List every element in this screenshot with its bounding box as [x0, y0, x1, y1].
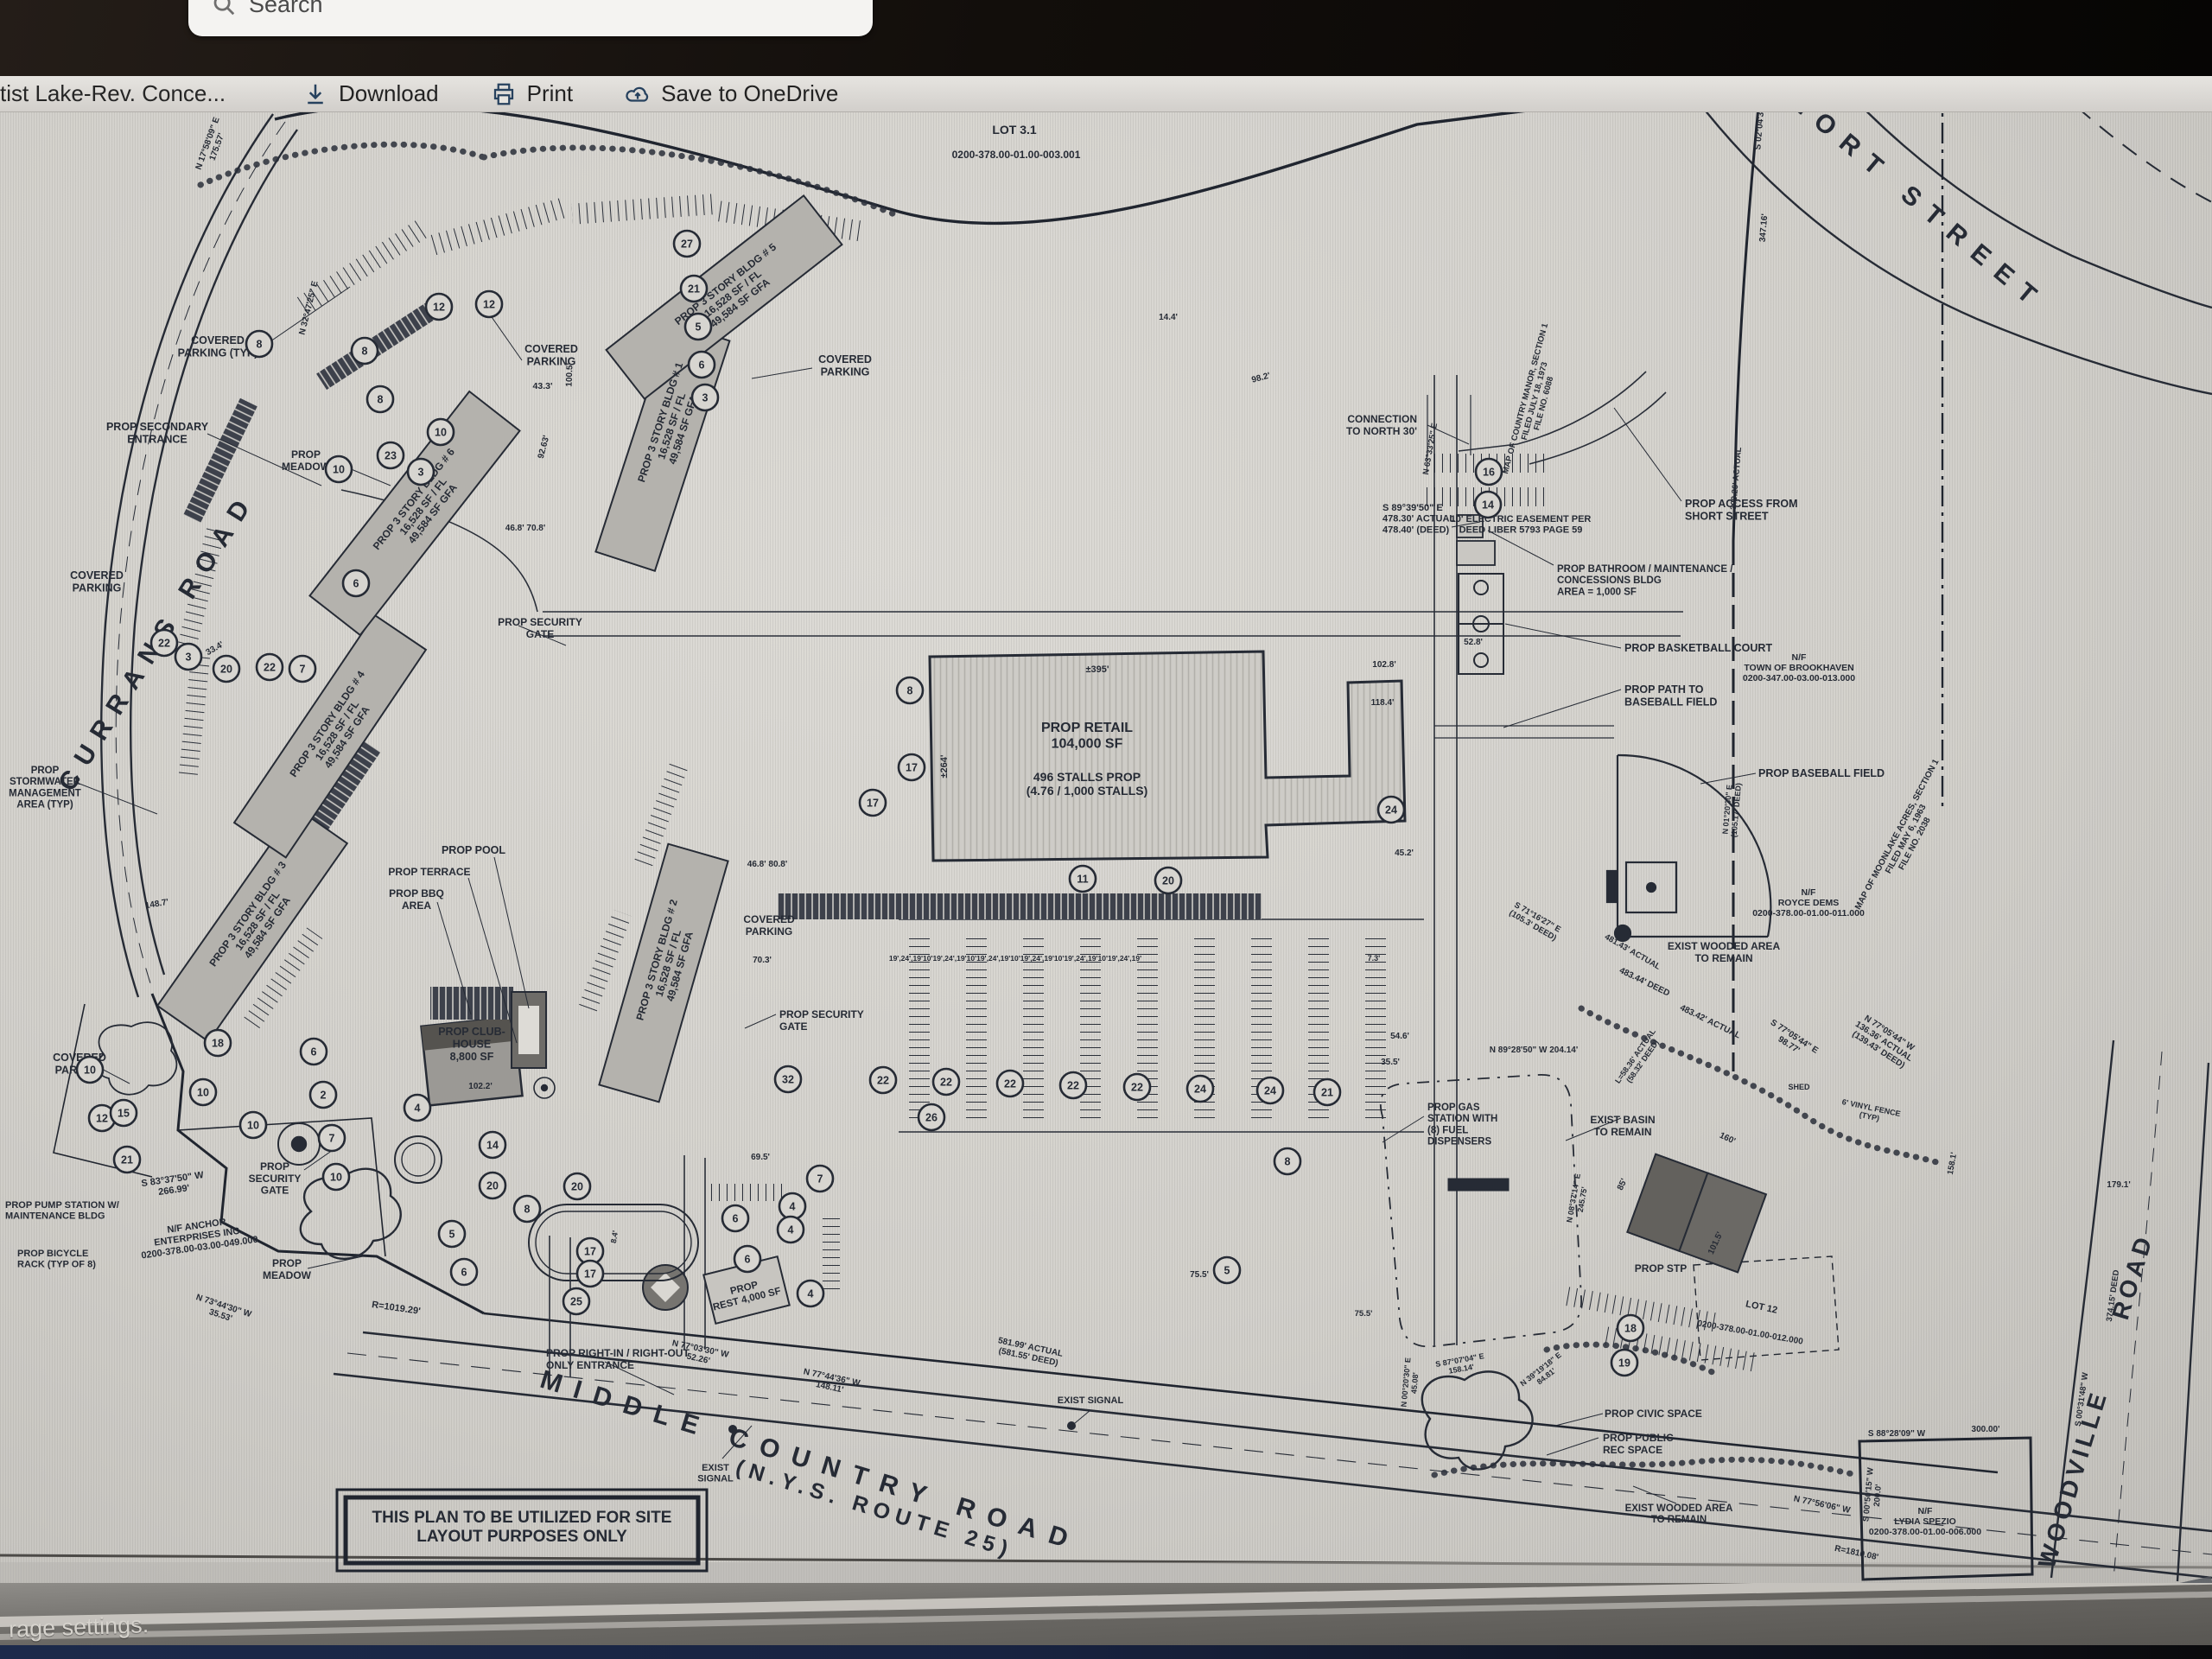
document-preview-pane[interactable]: CURRANS ROADMIDDLE COUNTRY ROAD(N.Y.S. R…: [0, 112, 2212, 1583]
plan-label: PROP PUBLICREC SPACE: [1603, 1432, 1674, 1456]
svg-text:7: 7: [329, 1133, 335, 1145]
stall-count-badge: 6: [689, 352, 715, 378]
stall-count-badge: 21: [681, 276, 707, 302]
stall-count-badge: 2: [310, 1082, 336, 1108]
plan-label: R=1019.29': [371, 1300, 421, 1317]
plan-label: CONNECTIONTO NORTH 30': [1346, 413, 1417, 437]
plan-label: 481.43' ACTUAL: [1603, 932, 1662, 972]
search-input[interactable]: Search: [188, 0, 873, 36]
stp-building: [1627, 1154, 1766, 1273]
plan-label: PROP SECONDARYENTRANCE: [106, 421, 209, 445]
stall-count-badge: 8: [514, 1196, 540, 1222]
svg-text:19: 19: [1618, 1357, 1630, 1370]
plan-label: 118.4': [1371, 698, 1395, 708]
plan-label: PROP PUMP STATION W/MAINTENANCE BLDG: [5, 1200, 119, 1222]
stall-count-badge: 20: [480, 1173, 505, 1198]
svg-text:27: 27: [681, 238, 693, 251]
svg-text:20: 20: [1162, 875, 1174, 887]
plan-label: S 00°50'15" W200.0': [1861, 1467, 1885, 1523]
stall-count-badge: 3: [175, 644, 201, 670]
terrace-structure: [430, 987, 513, 1020]
plan-label: N/FTOWN OF BROOKHAVEN0200-347.00-03.00-0…: [1743, 652, 1855, 683]
basketball-court: [1459, 574, 1503, 674]
stall-count-badge: 23: [378, 442, 404, 468]
plan-label: 158.1': [1946, 1152, 1959, 1176]
stall-count-badge: 15: [111, 1100, 137, 1126]
stall-count-badge: 4: [404, 1095, 430, 1121]
svg-text:6: 6: [745, 1254, 751, 1266]
svg-text:7: 7: [300, 664, 306, 676]
svg-text:2: 2: [321, 1090, 327, 1102]
preview-toolbar: tist Lake-Rev. Conce... Download Print S…: [0, 76, 2212, 112]
svg-text:14: 14: [1482, 499, 1494, 512]
plan-label: PROP ACCESS FROMSHORT STREET: [1685, 498, 1798, 522]
plan-label: 35.5': [1381, 1058, 1400, 1067]
plan-label: EXISTSIGNAL: [697, 1463, 734, 1484]
svg-text:5: 5: [1224, 1265, 1230, 1277]
plan-label: N 01°20'30" E(105.17' DEED): [1720, 782, 1743, 838]
plan-label: R=1810.08': [1834, 1544, 1879, 1562]
plan-label: 33.4': [205, 640, 226, 658]
plan-label: PROP BBQAREA: [389, 887, 444, 912]
svg-text:5: 5: [449, 1229, 455, 1241]
svg-text:24: 24: [1385, 804, 1397, 817]
stall-count-badge: 10: [190, 1079, 216, 1105]
download-button[interactable]: Download: [302, 80, 439, 107]
svg-text:8: 8: [362, 346, 368, 358]
monument-feature: [643, 1265, 688, 1310]
svg-text:24: 24: [1194, 1084, 1206, 1096]
plan-label: COVEREDPARKING: [70, 569, 124, 594]
stall-count-badge: 22: [1060, 1072, 1086, 1098]
svg-text:10: 10: [333, 464, 345, 476]
plan-label: N 73°44'30" W35.53': [192, 1293, 253, 1329]
plan-label: THIS PLAN TO BE UTILIZED FOR SITELAYOUT …: [372, 1509, 672, 1546]
plan-label: 0200-378.00-01.00-003.001: [952, 149, 1081, 161]
stall-count-badge: 17: [577, 1261, 603, 1287]
plan-label: PROPMEADOW: [263, 1257, 312, 1281]
svg-text:8: 8: [378, 394, 384, 406]
plan-label: N 77°44'36" W148.11': [800, 1367, 861, 1398]
stall-count-badge: 4: [779, 1193, 805, 1219]
svg-text:12: 12: [96, 1113, 108, 1125]
svg-text:4: 4: [788, 1224, 794, 1236]
document-title: tist Lake-Rev. Conce...: [0, 80, 302, 107]
stall-count-badge: 24: [1257, 1077, 1283, 1103]
svg-text:25: 25: [570, 1296, 582, 1308]
stall-count-badge: 22: [257, 654, 283, 680]
svg-text:20: 20: [571, 1181, 583, 1193]
stall-count-badge: 18: [1618, 1315, 1643, 1341]
svg-text:26: 26: [925, 1112, 938, 1124]
plan-label: 52.8': [1464, 638, 1483, 647]
plan-label: PROP POOL: [442, 844, 505, 856]
svg-text:20: 20: [220, 664, 232, 676]
stall-count-badge: 7: [319, 1125, 345, 1151]
save-to-onedrive-button[interactable]: Save to OneDrive: [625, 80, 838, 107]
plan-label: 46.8' 70.8': [505, 524, 545, 533]
svg-text:24: 24: [1264, 1085, 1276, 1097]
stall-count-badge: 3: [408, 459, 434, 485]
svg-text:14: 14: [486, 1140, 499, 1152]
svg-text:22: 22: [877, 1075, 889, 1087]
plan-label: EXIST BASINTO REMAIN: [1590, 1114, 1655, 1138]
plan-label: COVEREDPARKING: [818, 353, 872, 378]
stall-count-badge: 20: [1155, 868, 1181, 893]
stall-count-badge: 8: [897, 677, 923, 703]
plan-label: PROP RETAIL104,000 SF: [1041, 721, 1133, 751]
svg-text:6: 6: [699, 359, 705, 372]
stall-count-badge: 14: [480, 1132, 505, 1158]
svg-text:3: 3: [186, 652, 192, 664]
stall-count-badge: 6: [734, 1246, 760, 1272]
plan-label: 0200-378.00-01.00-012.000: [1696, 1319, 1803, 1346]
svg-text:17: 17: [867, 798, 879, 810]
plan-label: PROP BASEBALL FIELD: [1758, 767, 1885, 779]
stall-count-badge: 25: [563, 1288, 589, 1314]
plan-label: EXIST SIGNAL: [1058, 1395, 1124, 1406]
plan-label: 54.6': [1390, 1032, 1409, 1041]
plan-label: 347.16': [1758, 213, 1770, 243]
stall-count-badge: 8: [1274, 1148, 1300, 1174]
plan-label: S 77°05'44" E98.77': [1764, 1018, 1821, 1065]
stall-count-badge: 32: [775, 1066, 801, 1092]
stall-count-badge: 5: [685, 314, 711, 340]
download-label: Download: [339, 80, 439, 107]
screen-photo: Search tist Lake-Rev. Conce... Download …: [0, 0, 2212, 1659]
plan-label: 75.5': [1190, 1270, 1209, 1280]
svg-text:10: 10: [330, 1172, 342, 1184]
plan-label: 102.8': [1372, 660, 1395, 670]
stall-count-badge: 21: [114, 1147, 140, 1173]
svg-text:15: 15: [118, 1108, 130, 1120]
svg-text:21: 21: [1321, 1087, 1333, 1099]
stall-count-badge: 14: [1475, 492, 1501, 518]
svg-text:22: 22: [1067, 1080, 1079, 1092]
download-icon: [302, 81, 328, 107]
svg-text:10: 10: [247, 1120, 259, 1132]
svg-text:6: 6: [461, 1267, 467, 1279]
plan-label: 8.4': [609, 1230, 620, 1243]
plan-label: EXIST WOODED AREATO REMAIN: [1625, 1503, 1733, 1525]
plan-label: 483.44' DEED: [1618, 966, 1671, 999]
stall-count-badge: 18: [205, 1030, 231, 1056]
plan-label: 581.99' ACTUAL(581.55' DEED): [995, 1336, 1064, 1369]
plan-label: L=58.36' ACTUAL(58.32' DEED): [1613, 1027, 1665, 1090]
plan-label: EXIST WOODED AREATO REMAIN: [1668, 940, 1781, 964]
svg-text:10: 10: [84, 1065, 96, 1077]
plan-label: ±395': [1085, 664, 1109, 675]
plan-label: N 77°56'06" W: [1793, 1494, 1852, 1516]
plan-label: SHORT STREET: [1761, 112, 2052, 318]
plan-label: PROP RIGHT-IN / RIGHT-OUTONLY ENTRANCE: [546, 1347, 690, 1371]
plan-label: LOT 12: [1745, 1299, 1778, 1315]
stall-count-badge: 21: [1314, 1079, 1340, 1105]
stall-count-badge: 4: [798, 1281, 823, 1306]
svg-text:10: 10: [197, 1087, 209, 1099]
svg-text:3: 3: [418, 467, 424, 479]
plan-label: PROP STP: [1635, 1262, 1687, 1274]
stall-count-badge: 17: [899, 754, 925, 780]
top-window-strip: Search: [0, 0, 2212, 76]
plan-label: N 77°05'44" W136.36' ACTUAL(139.43' DEED…: [1848, 1011, 1920, 1071]
stall-count-badge: 20: [213, 656, 239, 682]
svg-text:21: 21: [121, 1154, 133, 1166]
stall-count-badge: 12: [476, 291, 502, 317]
plan-label: S 88°28'09" W: [1868, 1429, 1926, 1439]
svg-text:22: 22: [940, 1077, 952, 1089]
settings-text: rage settings.: [9, 1611, 149, 1643]
plan-label: N 17°58'09" E175.57': [194, 116, 232, 175]
plan-label: N 89°28'50" W 204.14': [1490, 1046, 1578, 1055]
svg-text:8: 8: [524, 1204, 531, 1216]
plan-label: 92.63': [537, 435, 552, 460]
plan-label: COVEREDPARKING: [743, 913, 795, 938]
plan-label: WOODVILLE: [2033, 1386, 2113, 1571]
svg-text:4: 4: [790, 1201, 796, 1213]
plan-label: 43.3': [533, 381, 553, 391]
svg-text:23: 23: [385, 450, 397, 462]
print-label: Print: [527, 80, 573, 107]
plan-label: PROP GASSTATION WITH(8) FUELDISPENSERS: [1427, 1103, 1497, 1147]
svg-text:12: 12: [433, 302, 445, 314]
search-icon: [211, 0, 237, 17]
svg-text:16: 16: [1483, 467, 1495, 479]
stall-count-badge: 6: [343, 570, 369, 596]
plan-label: PROPMEADOW: [282, 448, 331, 473]
plan-label: SHED: [1788, 1083, 1810, 1091]
svg-text:22: 22: [1004, 1078, 1016, 1090]
stall-count-badge: 24: [1378, 797, 1404, 823]
plan-label: S 71°16'27" E(105.3' DEED): [1507, 900, 1562, 944]
stall-count-badge: 19: [1611, 1350, 1637, 1376]
plan-label: PROP TERRACE: [388, 866, 470, 878]
save-label: Save to OneDrive: [661, 80, 838, 107]
svg-text:4: 4: [415, 1103, 421, 1115]
stall-count-badge: 22: [1124, 1074, 1150, 1100]
stall-count-badge: 22: [933, 1069, 959, 1095]
plan-label: 46.8' 80.8': [747, 860, 787, 869]
plan-label: 10' ELECTRIC EASEMENT PERDEED LIBER 5793…: [1451, 514, 1592, 536]
stall-count-badge: 22: [151, 630, 177, 656]
svg-text:32: 32: [782, 1074, 794, 1086]
svg-text:8: 8: [907, 685, 913, 697]
svg-text:8: 8: [257, 339, 263, 351]
stall-count-badge: 8: [352, 338, 378, 364]
svg-text:6: 6: [733, 1213, 739, 1225]
plan-label: PROP CIVIC SPACE: [1605, 1408, 1702, 1420]
svg-text:17: 17: [584, 1268, 596, 1281]
plan-label: 179.1': [2107, 1180, 2130, 1190]
print-icon: [491, 81, 517, 107]
stall-count-badge: 6: [301, 1039, 327, 1065]
svg-text:17: 17: [906, 762, 918, 774]
plan-label: 69.5': [751, 1153, 770, 1162]
plan-label: S 89°39'50" E478.30' ACTUAL478.40' (DEED…: [1382, 503, 1455, 535]
plan-label: 19',24',19'10'19',24',19'10'19',24',19'1…: [889, 954, 1141, 963]
plan-label: 148.7': [144, 898, 169, 912]
plan-label: N 08°37'14" E245.75': [1565, 1173, 1591, 1224]
stall-count-badge: 10: [323, 1164, 349, 1190]
svg-text:22: 22: [1131, 1082, 1143, 1094]
plan-label: PROPSECURITYGATE: [249, 1160, 302, 1197]
plan-label: LOT 3.1: [992, 123, 1037, 137]
site-plan-svg: CURRANS ROADMIDDLE COUNTRY ROAD(N.Y.S. R…: [0, 112, 2212, 1583]
svg-text:5: 5: [696, 321, 702, 334]
plan-label: 45.2': [1395, 849, 1414, 858]
svg-text:18: 18: [1624, 1323, 1637, 1335]
svg-text:6: 6: [353, 578, 359, 590]
taskbar-strip: [0, 1645, 2212, 1659]
stall-count-badge: 12: [426, 294, 452, 320]
bottom-band: rage settings.: [0, 1583, 2212, 1659]
stall-count-badge: 16: [1476, 459, 1502, 485]
svg-text:22: 22: [264, 662, 276, 674]
stall-count-badge: 26: [918, 1104, 944, 1130]
stall-count-badge: 7: [807, 1166, 833, 1192]
plan-label: PROP BASKETBALL COURT: [1624, 642, 1772, 654]
stall-count-badge: 5: [1214, 1257, 1240, 1283]
plan-label: 85': [1616, 1177, 1630, 1192]
baseball-field: [1607, 755, 1770, 941]
plan-label: PROP BATHROOM / MAINTENANCE /CONCESSIONS…: [1557, 564, 1733, 597]
plan-label: S 83°37'50" W266.99': [141, 1170, 207, 1200]
stall-count-badge: 22: [997, 1071, 1023, 1096]
svg-text:7: 7: [817, 1173, 823, 1185]
stall-count-badge: 6: [722, 1205, 748, 1231]
stall-count-badge: 3: [692, 385, 718, 410]
stall-count-badge: 10: [77, 1057, 103, 1083]
plan-label: 496 STALLS PROP(4.76 / 1,000 STALLS): [1027, 770, 1148, 798]
svg-text:22: 22: [158, 638, 170, 650]
plan-label: 75.5': [1355, 1309, 1373, 1319]
stall-count-badge: 27: [674, 231, 700, 257]
cloud-upload-icon: [625, 81, 651, 107]
svg-text:18: 18: [212, 1038, 224, 1050]
plan-label: 70.3': [753, 956, 772, 965]
print-button[interactable]: Print: [491, 80, 573, 107]
plan-label: 300.00': [1972, 1425, 2000, 1434]
svg-text:20: 20: [486, 1180, 499, 1192]
plan-label: 100.5': [565, 363, 575, 387]
svg-text:17: 17: [584, 1246, 596, 1258]
stall-count-badge: 20: [564, 1173, 590, 1199]
svg-text:21: 21: [688, 283, 700, 296]
stall-count-badge: 8: [246, 331, 272, 357]
plan-label: 102.2': [468, 1082, 492, 1091]
svg-text:11: 11: [1077, 874, 1088, 886]
plan-label: 6' VINYL FENCE(TYP): [1840, 1097, 1902, 1127]
stall-count-badge: 4: [778, 1217, 804, 1243]
stall-count-badge: 10: [428, 419, 454, 445]
stall-count-badge: 11: [1070, 866, 1096, 892]
plan-label: N/F ANCHORENTERPRISES INC.0200-378.00-03…: [137, 1213, 258, 1262]
stall-count-badge: 10: [326, 456, 352, 482]
svg-text:4: 4: [808, 1288, 814, 1300]
bezel-stripe: [0, 1583, 2212, 1628]
plan-label: PROP BICYCLERACK (TYP OF 8): [17, 1249, 96, 1270]
svg-text:10: 10: [435, 427, 447, 439]
plan-label: N 00°20'30" E45.08': [1400, 1357, 1421, 1408]
stall-count-badge: 24: [1187, 1076, 1213, 1102]
plan-label: N/FLYDIA SPEZIO0200-378.00-01.00-006.000: [1869, 1506, 1981, 1537]
stall-count-badge: 8: [367, 386, 393, 412]
plan-label: PROP PATH TOBASEBALL FIELD: [1624, 683, 1717, 708]
pool: [512, 992, 546, 1068]
plan-label: 160': [1718, 1131, 1737, 1147]
stall-count-badge: 10: [240, 1112, 266, 1138]
buildings-layer: [97, 195, 1770, 1469]
stall-count-badge: 17: [860, 790, 886, 816]
stall-count-badge: 6: [451, 1259, 477, 1285]
plan-label: S 02°04'36" E: [1753, 112, 1768, 150]
svg-text:8: 8: [1285, 1156, 1291, 1168]
svg-text:12: 12: [483, 299, 495, 311]
svg-text:6: 6: [311, 1046, 317, 1058]
plan-label: PROP SECURITYGATE: [779, 1008, 864, 1033]
retail-building: [930, 652, 1405, 861]
search-placeholder: Search: [249, 0, 323, 18]
plan-label: 14.4': [1159, 313, 1178, 322]
stall-count-badge: 7: [289, 656, 315, 682]
stall-count-badge: 22: [870, 1067, 896, 1093]
svg-text:3: 3: [702, 392, 709, 404]
plan-label: ±264': [939, 754, 950, 778]
stall-count-badge: 5: [439, 1221, 465, 1247]
plan-label: N 39°19'18" E84.81': [1518, 1351, 1568, 1395]
plan-label: 98.2': [1250, 371, 1271, 385]
plan-label: 7.3': [1368, 954, 1381, 963]
